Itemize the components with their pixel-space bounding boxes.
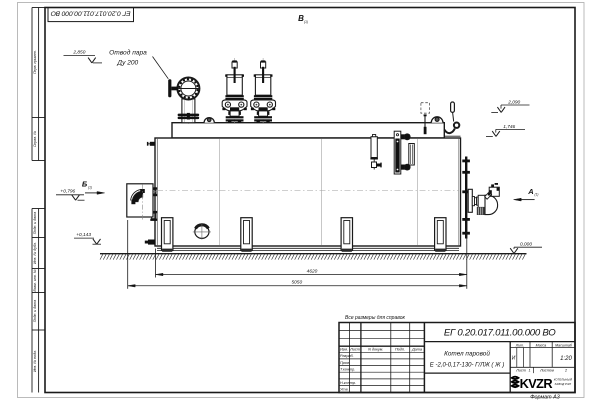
svg-text:Подп. и дата: Подп. и дата <box>33 300 37 323</box>
svg-text:Все размеры для справок: Все размеры для справок <box>345 315 406 321</box>
svg-text:Б: Б <box>82 180 88 189</box>
svg-text:2,850: 2,850 <box>72 49 85 55</box>
svg-text:Пров.: Пров. <box>340 361 350 365</box>
svg-text:4620: 4620 <box>307 268 318 274</box>
svg-text:KVZR: KVZR <box>520 376 553 391</box>
svg-text:И: И <box>512 356 516 362</box>
svg-text:0,000: 0,000 <box>520 241 532 247</box>
svg-text:Т.контр.: Т.контр. <box>340 368 355 372</box>
svg-text:Подп. и дата: Подп. и дата <box>33 212 37 235</box>
svg-text:ЗАВОД РЭП: ЗАВОД РЭП <box>555 382 572 386</box>
svg-text:1: 1 <box>528 369 530 373</box>
svg-text:Инв. № подл.: Инв. № подл. <box>33 350 37 372</box>
svg-text:N докум.: N докум. <box>368 348 383 352</box>
svg-text:Отвод пара: Отвод пара <box>109 49 147 57</box>
svg-text:Взам. инв. №: Взам. инв. № <box>33 269 37 291</box>
svg-text:Разраб.: Разраб. <box>340 354 354 358</box>
svg-text:Подп.: Подп. <box>395 348 405 352</box>
svg-text:Масса: Масса <box>536 343 547 347</box>
svg-text:ЕГ 0.20.017.011.00.000 ВО: ЕГ 0.20.017.011.00.000 ВО <box>50 10 131 17</box>
svg-text:Изм.: Изм. <box>340 348 348 352</box>
svg-text:Е -2,0-0,17-130- Г/ЛЖ ( Ж ): Е -2,0-0,17-130- Г/ЛЖ ( Ж ) <box>430 363 504 369</box>
svg-text:Перв. примен.: Перв. примен. <box>33 50 37 74</box>
svg-text:(1): (1) <box>88 185 92 189</box>
svg-text:Ду 200: Ду 200 <box>116 60 138 67</box>
svg-text:Котел паровой: Котел паровой <box>444 350 490 358</box>
svg-text:Инв. № дубл.: Инв. № дубл. <box>33 242 37 264</box>
svg-text:Лист: Лист <box>349 348 360 352</box>
svg-text:Лист: Лист <box>515 369 526 373</box>
svg-text:Масштаб: Масштаб <box>555 343 573 347</box>
svg-text:Формат А3: Формат А3 <box>530 394 560 400</box>
svg-text:+0,796: +0,796 <box>60 189 75 195</box>
svg-text:+0,143: +0,143 <box>76 232 91 238</box>
svg-text:1:20: 1:20 <box>560 356 572 362</box>
svg-text:(1): (1) <box>535 193 539 197</box>
svg-text:(1): (1) <box>304 20 308 24</box>
svg-text:Лит.: Лит. <box>515 343 524 347</box>
svg-text:5050: 5050 <box>291 280 302 286</box>
svg-text:КОТЕЛЬНЫЙ: КОТЕЛЬНЫЙ <box>554 378 573 382</box>
svg-text:Листов: Листов <box>539 369 554 373</box>
svg-text:Н.контр.: Н.контр. <box>340 381 356 385</box>
svg-text:Дата: Дата <box>411 348 422 352</box>
svg-text:А: А <box>527 187 533 196</box>
svg-text:ЕГ 0.20.017.011.00.000 ВО: ЕГ 0.20.017.011.00.000 ВО <box>444 328 556 339</box>
svg-text:Справ. №: Справ. № <box>33 131 37 147</box>
svg-text:Утв.: Утв. <box>340 388 349 392</box>
